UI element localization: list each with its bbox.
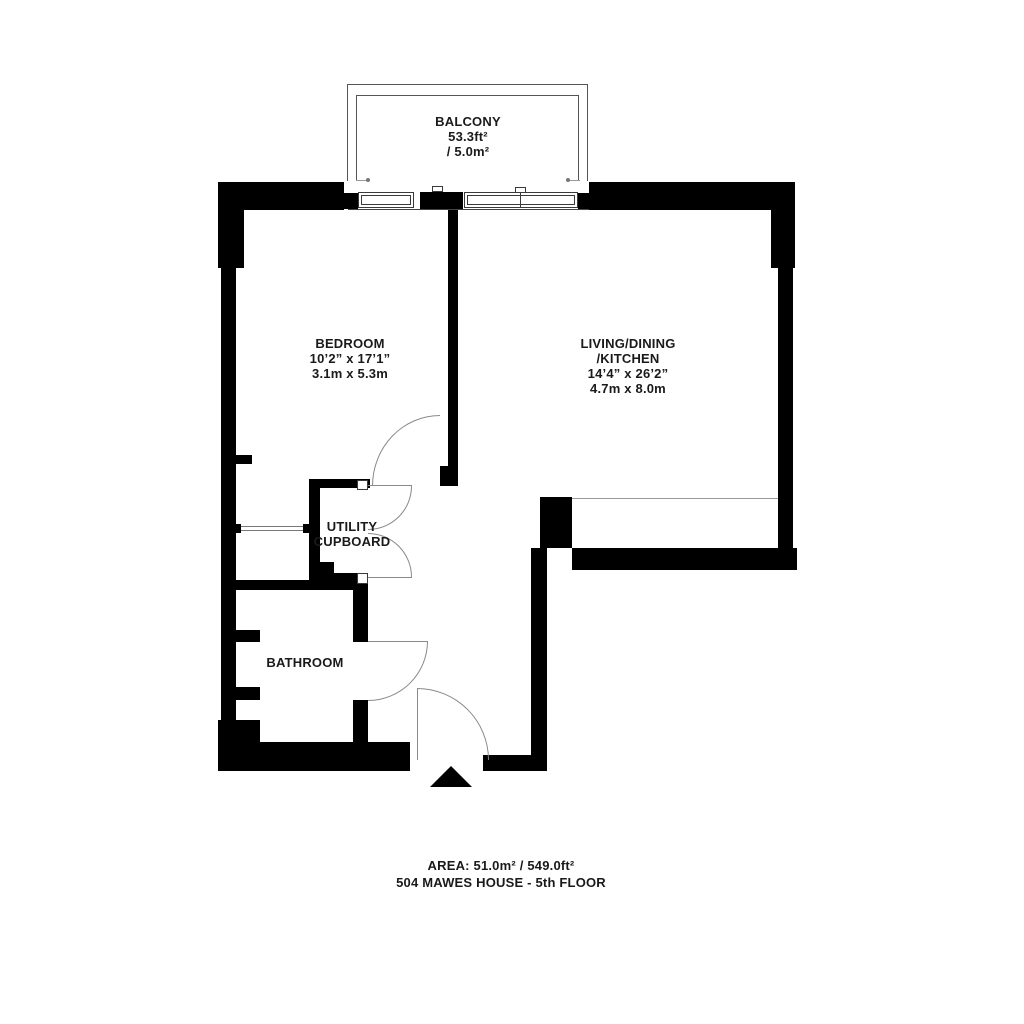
window-symbol-right (464, 192, 578, 208)
wall-bathroom-pier-upper (236, 630, 260, 642)
bedroom-dims-metric: 3.1m x 5.3m (310, 366, 391, 381)
living-dims-imperial: 14’4” x 26’2” (580, 366, 675, 381)
wall-bedroom-pier (236, 455, 252, 464)
bedroom-name: BEDROOM (310, 336, 391, 351)
utility-name-line2: CUPBOARD (314, 534, 391, 549)
window-sill-line (348, 209, 589, 210)
partition-end-cap-right (303, 524, 311, 533)
hinge-mark-utility-top (357, 480, 368, 490)
wall-left (221, 268, 236, 728)
bathroom-name: BATHROOM (266, 655, 343, 670)
balcony-label: BALCONY 53.3ft² / 5.0m² (435, 114, 501, 159)
window-pane (361, 195, 411, 205)
wall-hall-pier (540, 497, 572, 548)
footer-text: AREA: 51.0m² / 549.0ft² 504 MAWES HOUSE … (396, 857, 606, 891)
footer-building: 504 MAWES HOUSE - 5th FLOOR (396, 874, 606, 891)
entrance-arrow-icon (430, 766, 472, 787)
utility-name-line1: UTILITY (314, 519, 391, 534)
entrance-door-arc (417, 688, 489, 760)
balcony-area-metric: / 5.0m² (435, 144, 501, 159)
wall-bottom-bathroom (236, 742, 410, 771)
wall-window-pier (420, 192, 463, 210)
door-handle-mark (432, 186, 443, 192)
wall-bathroom-right-lower (353, 700, 368, 743)
window-symbol-left (358, 192, 414, 208)
wall-top-right (589, 182, 795, 210)
balcony-tick-right-dot (566, 178, 570, 182)
window-pane (467, 195, 575, 205)
kitchen-recess-line (572, 498, 778, 499)
wall-hall-right (531, 548, 547, 771)
wall-bedroom-divider-foot (440, 466, 448, 486)
wall-bathroom-right-upper (353, 590, 368, 642)
wall-bathroom-top (236, 580, 368, 590)
utility-label: UTILITY CUPBOARD (314, 519, 391, 549)
wall-bathroom-pier-lower (236, 687, 260, 700)
living-name-line1: LIVING/DINING (580, 336, 675, 351)
balcony-name: BALCONY (435, 114, 501, 129)
window-mullion (520, 193, 521, 207)
balcony-tick-left-dot (366, 178, 370, 182)
wall-balcony-left-base (344, 193, 358, 209)
wall-living-bottom (572, 548, 797, 570)
living-label: LIVING/DINING /KITCHEN 14’4” x 26’2” 4.7… (580, 336, 675, 396)
bedroom-dims-imperial: 10’2” x 17’1” (310, 351, 391, 366)
wall-bedroom-divider (448, 210, 458, 486)
utility-door-leaf-bottom (368, 577, 412, 578)
bedroom-wardrobe-partition (241, 526, 303, 531)
bedroom-label: BEDROOM 10’2” x 17’1” 3.1m x 5.3m (310, 336, 391, 381)
living-dims-metric: 4.7m x 8.0m (580, 381, 675, 396)
balcony-area-imperial: 53.3ft² (435, 129, 501, 144)
floor-plan: BALCONY 53.3ft² / 5.0m² BEDROOM 10’2” x … (0, 0, 1024, 1024)
footer-area: AREA: 51.0m² / 549.0ft² (396, 857, 606, 874)
bathroom-label: BATHROOM (266, 655, 343, 670)
bedroom-door-arc (372, 415, 440, 486)
hinge-mark-utility-bottom (357, 573, 368, 584)
balcony-tick-right (569, 180, 580, 181)
living-name-line2: /KITCHEN (580, 351, 675, 366)
wall-entrance-right (483, 755, 531, 771)
wall-right-pillar (771, 182, 795, 268)
window-center-mark (515, 187, 526, 193)
wall-right (778, 268, 793, 548)
partition-end-cap-left (233, 524, 241, 533)
wall-left-pillar (218, 182, 244, 268)
